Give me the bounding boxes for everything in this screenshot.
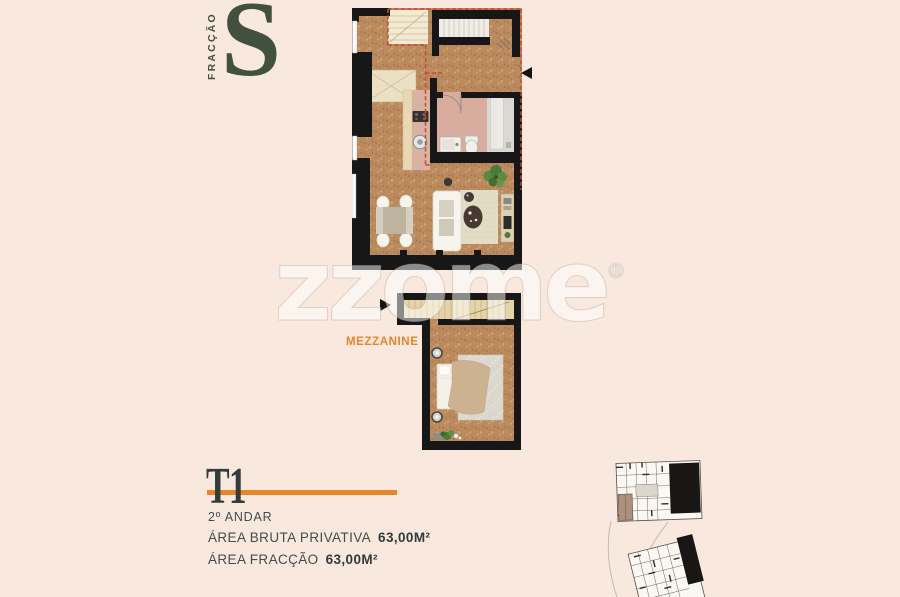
- gross-private-area-label: ÁREA BRUTA PRIVATIVA: [208, 530, 371, 545]
- entrance-arrow-icon: [521, 67, 532, 79]
- keyplan-upper-building: [616, 461, 702, 522]
- fraction-letter: S: [221, 0, 281, 94]
- fraction-area-value: 63,00M²: [326, 552, 378, 567]
- fraction-area-row: ÁREA FRACÇÃO63,00M²: [208, 552, 378, 567]
- fraction-label: FRACÇÃO: [206, 14, 222, 80]
- gross-private-area-value: 63,00M²: [378, 530, 430, 545]
- tv-console: [501, 194, 514, 242]
- keyplan-lower-building: [627, 534, 708, 597]
- typology-label: T1: [206, 461, 246, 513]
- gross-private-area-row: ÁREA BRUTA PRIVATIVA63,00M²: [208, 530, 430, 545]
- mezzanine-entrance-arrow-icon: [380, 299, 391, 311]
- building-key-plan: [598, 452, 730, 597]
- registered-mark: ®: [606, 259, 626, 283]
- mezzanine-stairs: [404, 300, 514, 319]
- fraction-area-label: ÁREA FRACÇÃO: [208, 552, 319, 567]
- bathroom: [437, 92, 514, 155]
- brochure-page: FRACÇÃO S: [0, 0, 900, 597]
- upper-floor-plan: [352, 8, 522, 270]
- mezzanine-floor-plan: [397, 293, 521, 450]
- interior-staircase: [388, 10, 428, 44]
